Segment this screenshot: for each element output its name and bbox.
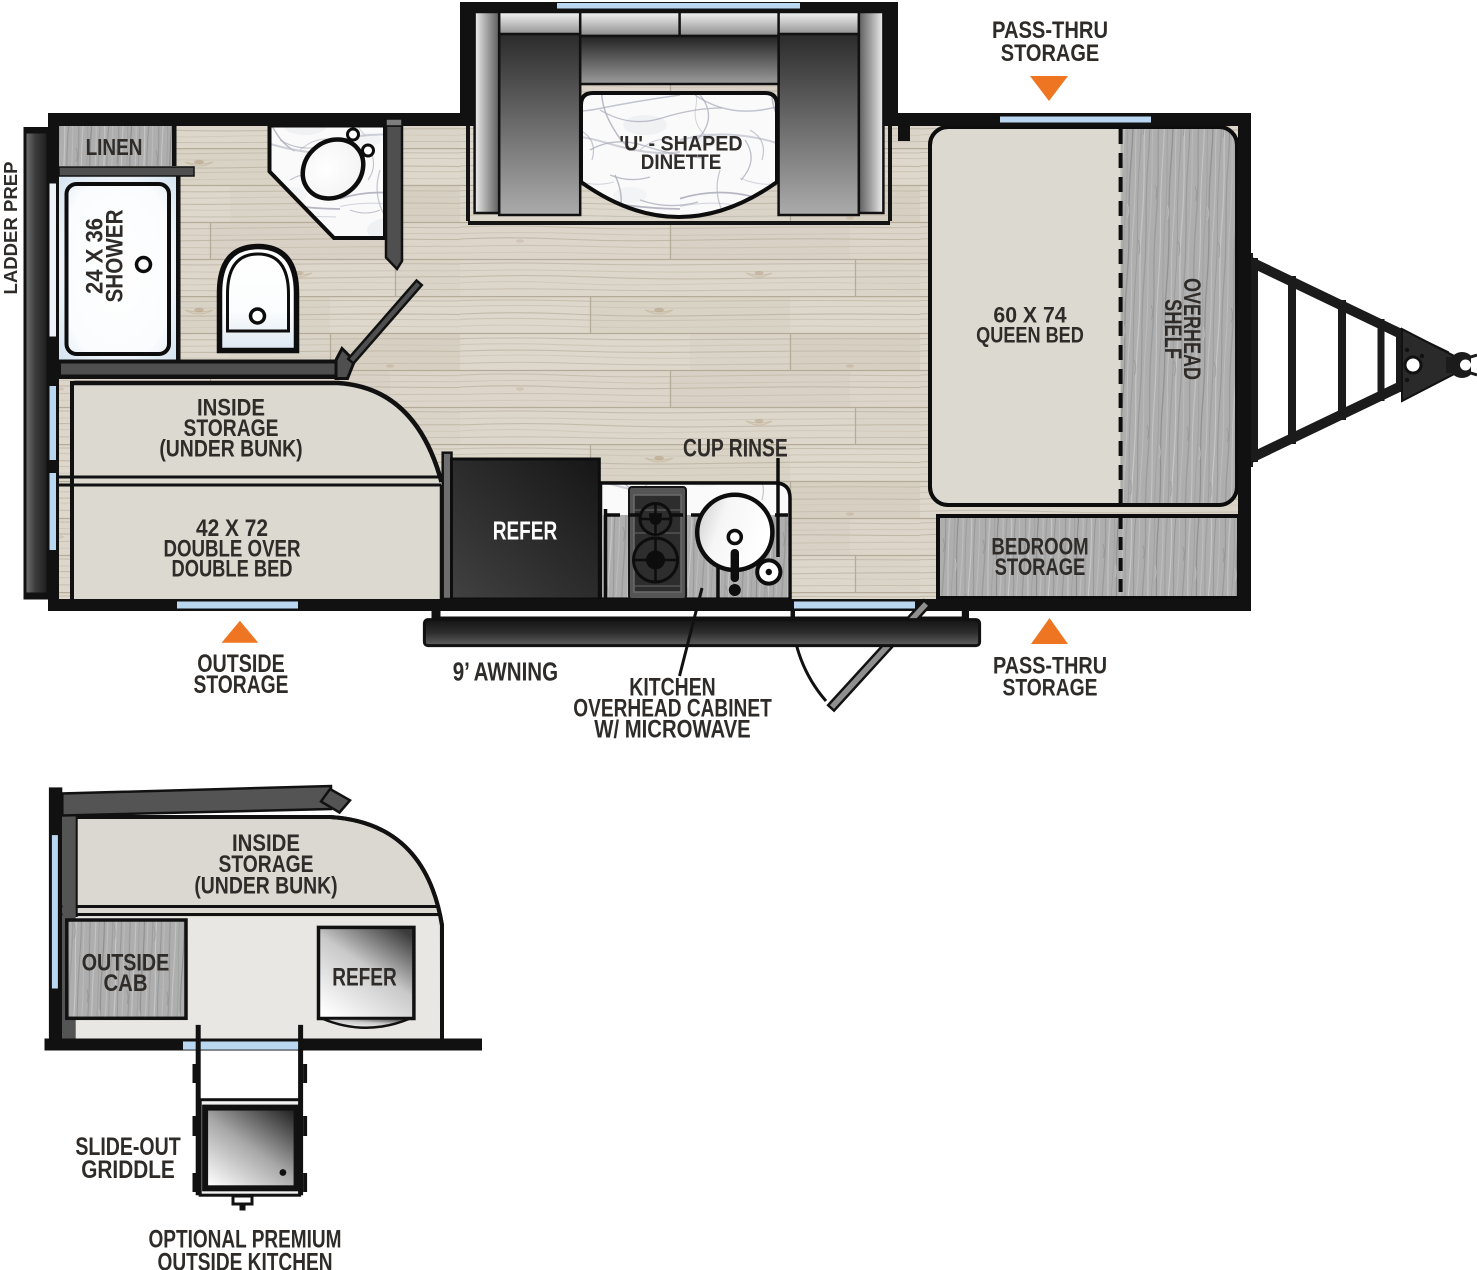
svg-text:QUEEN BED: QUEEN BED <box>976 323 1084 348</box>
svg-text:GRIDDLE: GRIDDLE <box>81 1157 175 1184</box>
svg-text:CUP RINSE: CUP RINSE <box>683 436 788 463</box>
svg-text:9’ AWNING: 9’ AWNING <box>453 656 558 686</box>
svg-text:SHELF: SHELF <box>1159 299 1186 359</box>
svg-text:REFER: REFER <box>332 964 397 992</box>
svg-text:OUTSIDE KITCHEN: OUTSIDE KITCHEN <box>158 1249 333 1270</box>
svg-text:LINEN: LINEN <box>86 134 143 160</box>
svg-text:LADDER PREP: LADDER PREP <box>0 162 21 295</box>
svg-text:REFER: REFER <box>493 515 558 545</box>
svg-text:STORAGE: STORAGE <box>995 554 1086 581</box>
svg-text:STORAGE: STORAGE <box>1001 40 1100 67</box>
svg-text:CAB: CAB <box>104 970 148 997</box>
svg-text:DOUBLE BED: DOUBLE BED <box>172 556 293 583</box>
svg-text:SHOWER: SHOWER <box>102 210 129 303</box>
svg-text:(UNDER BUNK): (UNDER BUNK) <box>159 436 302 463</box>
svg-text:STORAGE: STORAGE <box>1003 675 1098 702</box>
svg-text:(UNDER BUNK): (UNDER BUNK) <box>194 873 337 900</box>
svg-text:DINETTE: DINETTE <box>641 150 722 174</box>
svg-text:W/ MICROWAVE: W/ MICROWAVE <box>594 716 750 744</box>
svg-text:STORAGE: STORAGE <box>194 672 289 699</box>
